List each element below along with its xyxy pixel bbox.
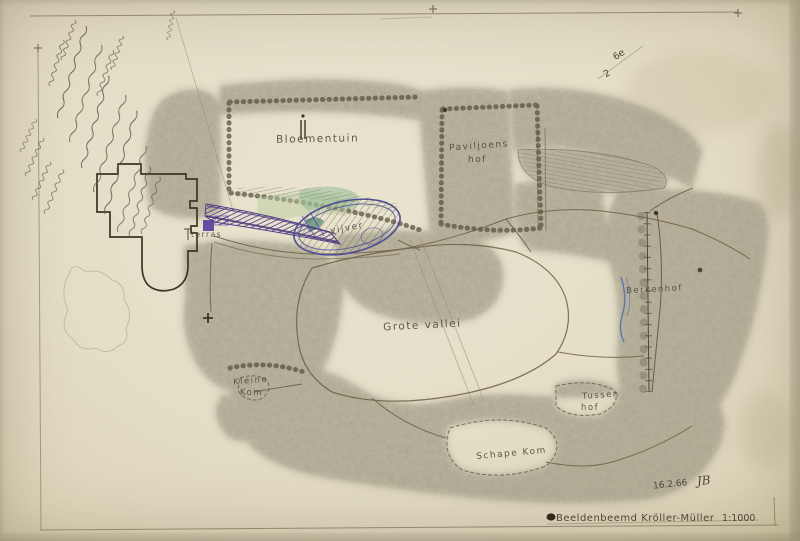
paper-grain — [0, 0, 800, 541]
plan-canvas: Bloementuin Paviljoens hof terras vijver… — [0, 0, 800, 541]
garden-plan-drawing: Bloementuin Paviljoens hof terras vijver… — [0, 0, 800, 541]
